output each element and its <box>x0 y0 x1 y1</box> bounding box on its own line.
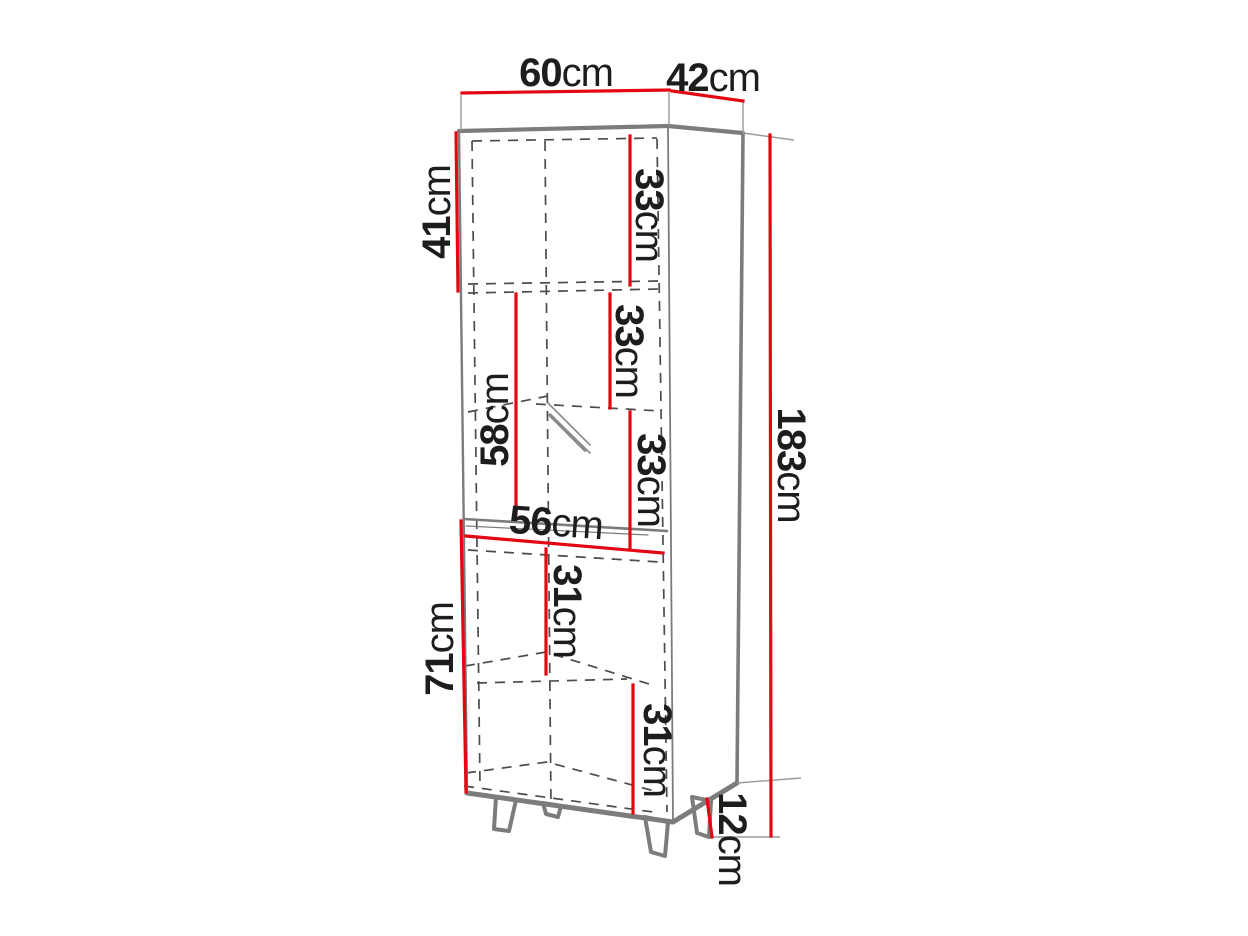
dim-label-overall-depth: 42cm <box>666 56 760 100</box>
dim-label-interior-width: 56cm <box>508 498 605 548</box>
dim-label-glass-shelf-spacing-lower: 33cm <box>629 433 673 527</box>
dim-label-lower-shelf-spacing-upper: 31cm <box>545 564 589 658</box>
dim-label-leg-height: 12cm <box>710 792 754 886</box>
dim-label-overall-width: 60cm <box>519 51 613 95</box>
dim-label-overall-height: 183cm <box>769 407 813 522</box>
dim-label-lower-section-height: 71cm <box>418 602 462 696</box>
furniture-dimension-diagram: 60cm 42cm 41cm 33cm 33cm 58cm 33cm 56cm … <box>0 0 1248 936</box>
dim-label-glass-section-height: 58cm <box>473 373 517 467</box>
dim-label-top-shelf-spacing: 33cm <box>627 168 671 262</box>
dim-label-lower-shelf-spacing-lower: 31cm <box>635 703 679 797</box>
dim-label-glass-shelf-spacing-upper: 33cm <box>607 304 651 398</box>
diagram-background <box>0 0 1248 936</box>
dim-label-top-section-height: 41cm <box>415 165 459 259</box>
diagram-canvas: 60cm 42cm 41cm 33cm 33cm 58cm 33cm 56cm … <box>0 0 1248 936</box>
